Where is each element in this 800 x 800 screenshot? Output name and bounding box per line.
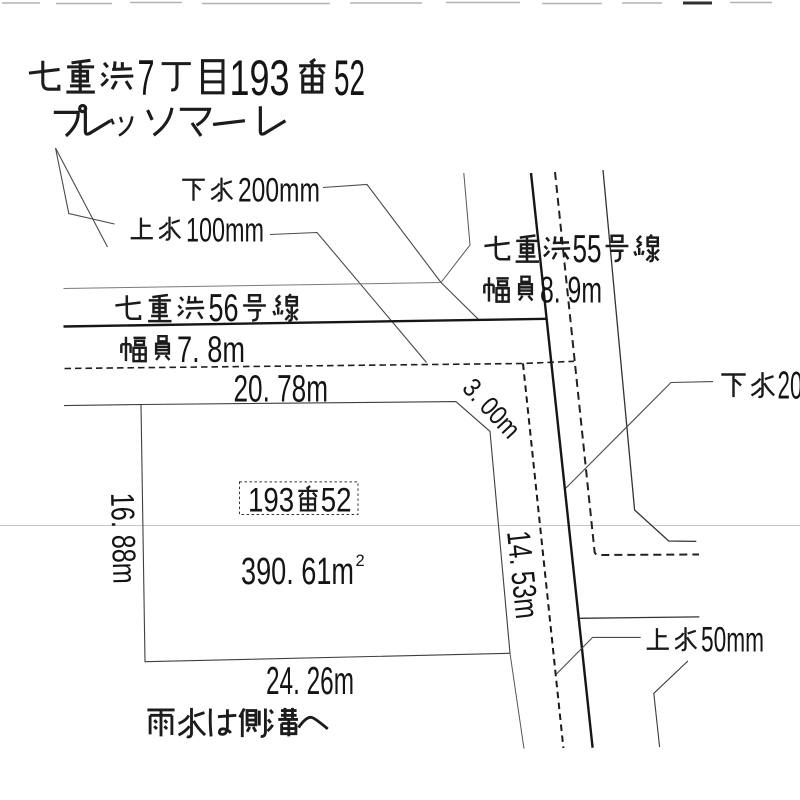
svg-text:20: 20 (778, 365, 800, 408)
svg-text:2: 2 (356, 552, 365, 570)
svg-text:100mm: 100mm (186, 212, 264, 250)
svg-text:20. 78m: 20. 78m (234, 368, 329, 410)
svg-text:16. 88m: 16. 88m (104, 492, 143, 584)
svg-text:52: 52 (334, 50, 365, 106)
svg-text:7: 7 (138, 50, 155, 106)
svg-text:193: 193 (248, 482, 294, 520)
svg-text:193: 193 (230, 50, 290, 106)
svg-text:8. 9m: 8. 9m (540, 270, 602, 311)
svg-text:7. 8m: 7. 8m (177, 329, 245, 370)
svg-text:24. 26m: 24. 26m (266, 660, 354, 703)
svg-text:52: 52 (321, 482, 352, 520)
svg-text:56: 56 (209, 287, 239, 330)
svg-text:3. 00m: 3. 00m (457, 373, 527, 445)
svg-text:50mm: 50mm (701, 621, 764, 660)
svg-text:14. 53m: 14. 53m (500, 529, 546, 620)
svg-text:55: 55 (573, 228, 602, 271)
svg-text:200mm: 200mm (238, 172, 320, 210)
svg-text:390. 61m: 390. 61m (241, 551, 354, 593)
